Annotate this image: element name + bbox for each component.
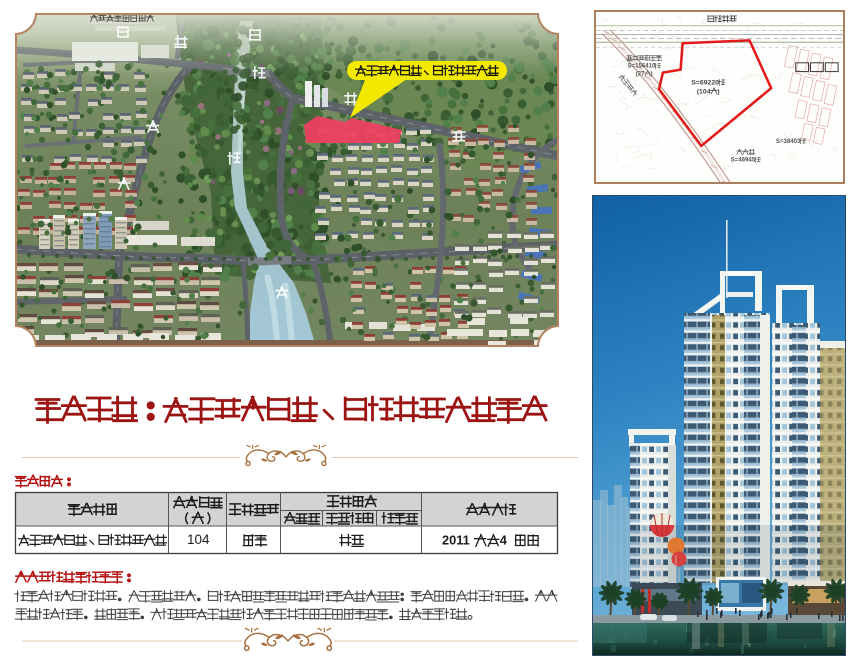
svg-text:4: 4 xyxy=(499,532,507,547)
svg-text:2011: 2011 xyxy=(442,532,470,547)
svg-text:104: 104 xyxy=(187,532,210,547)
